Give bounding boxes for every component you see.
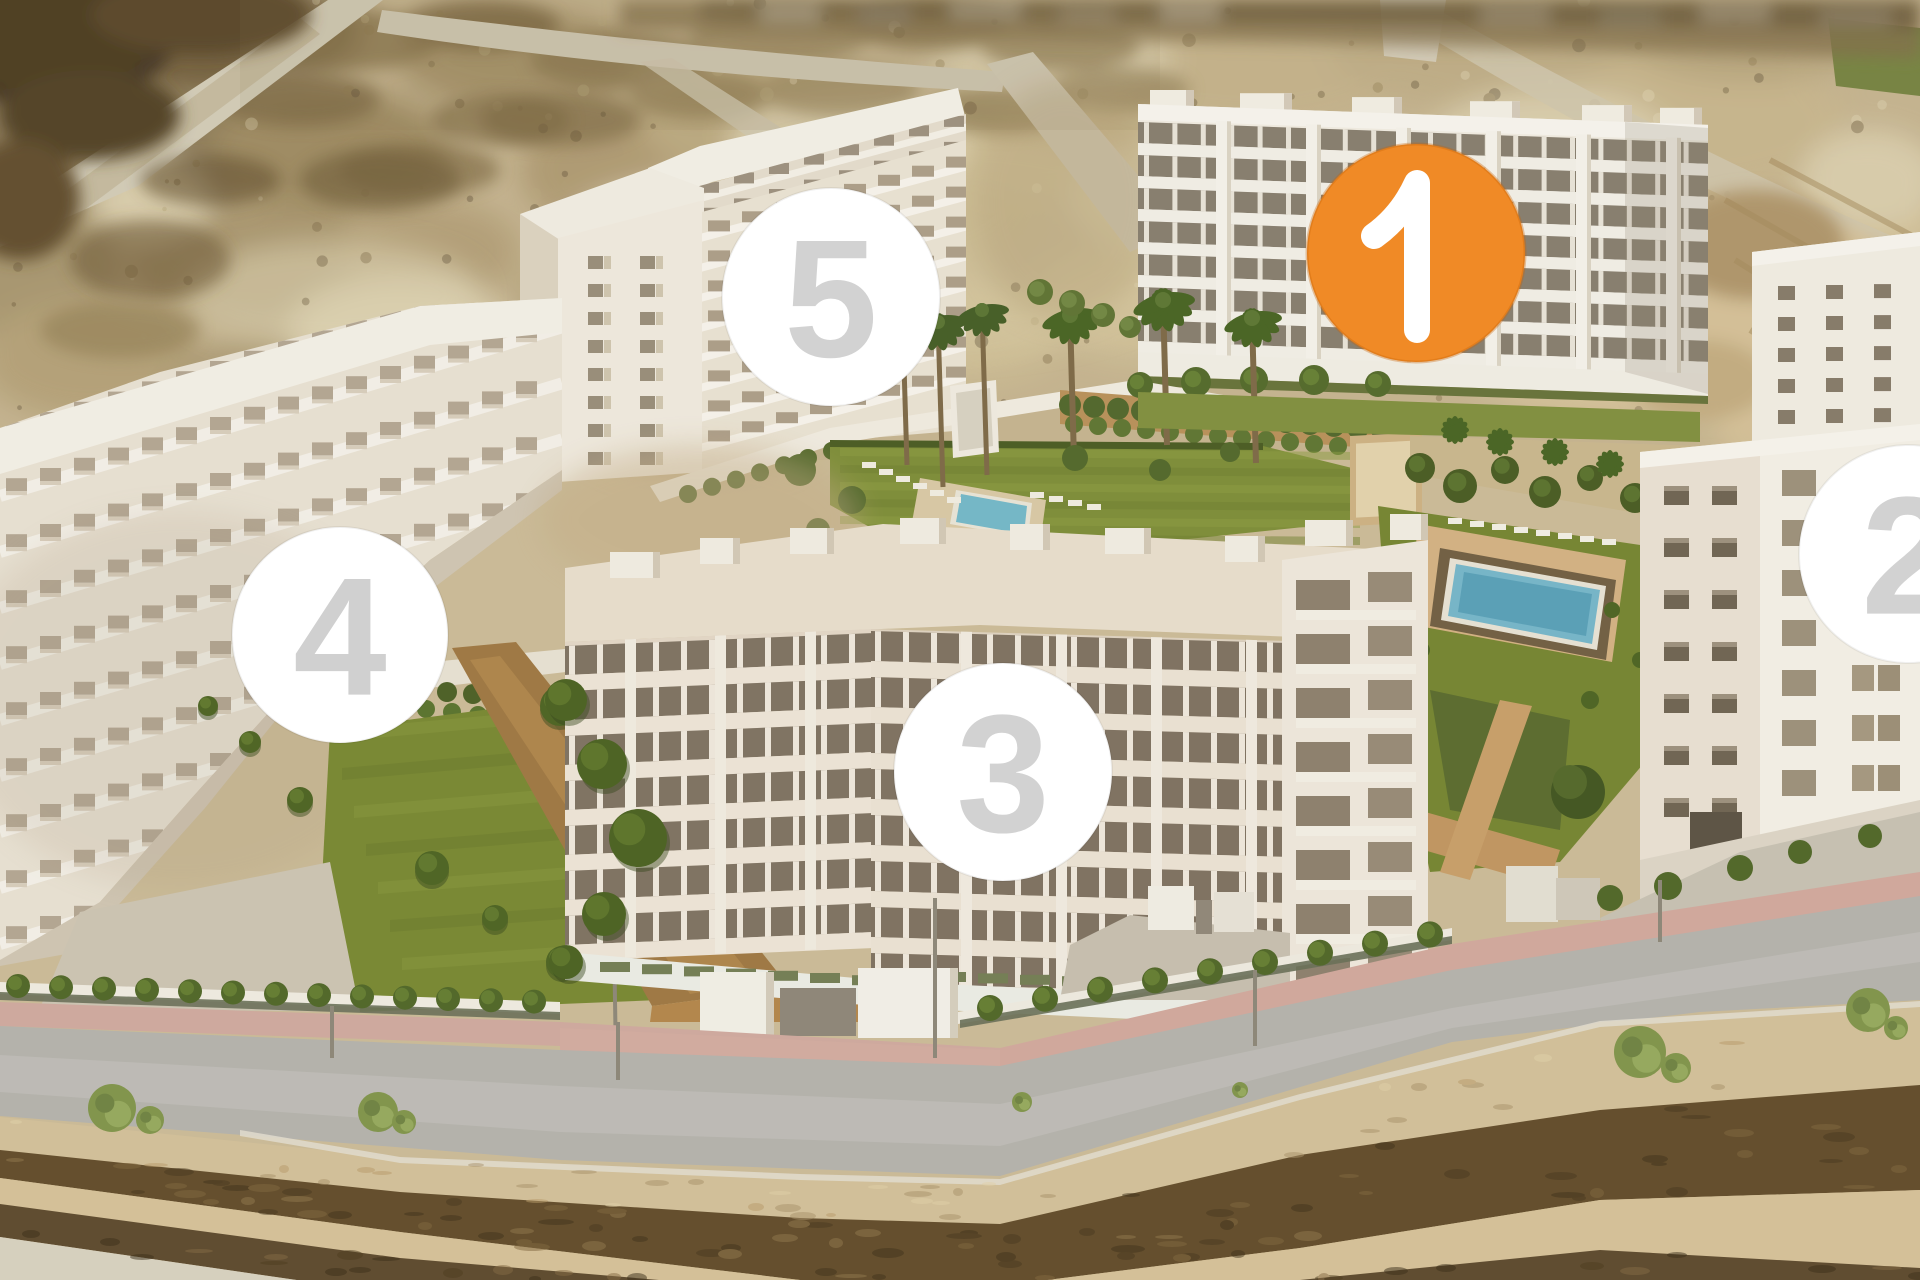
svg-text:2: 2 xyxy=(1861,462,1920,650)
svg-text:4: 4 xyxy=(293,543,386,731)
svg-text:3: 3 xyxy=(956,680,1049,868)
svg-text:5: 5 xyxy=(784,205,877,393)
